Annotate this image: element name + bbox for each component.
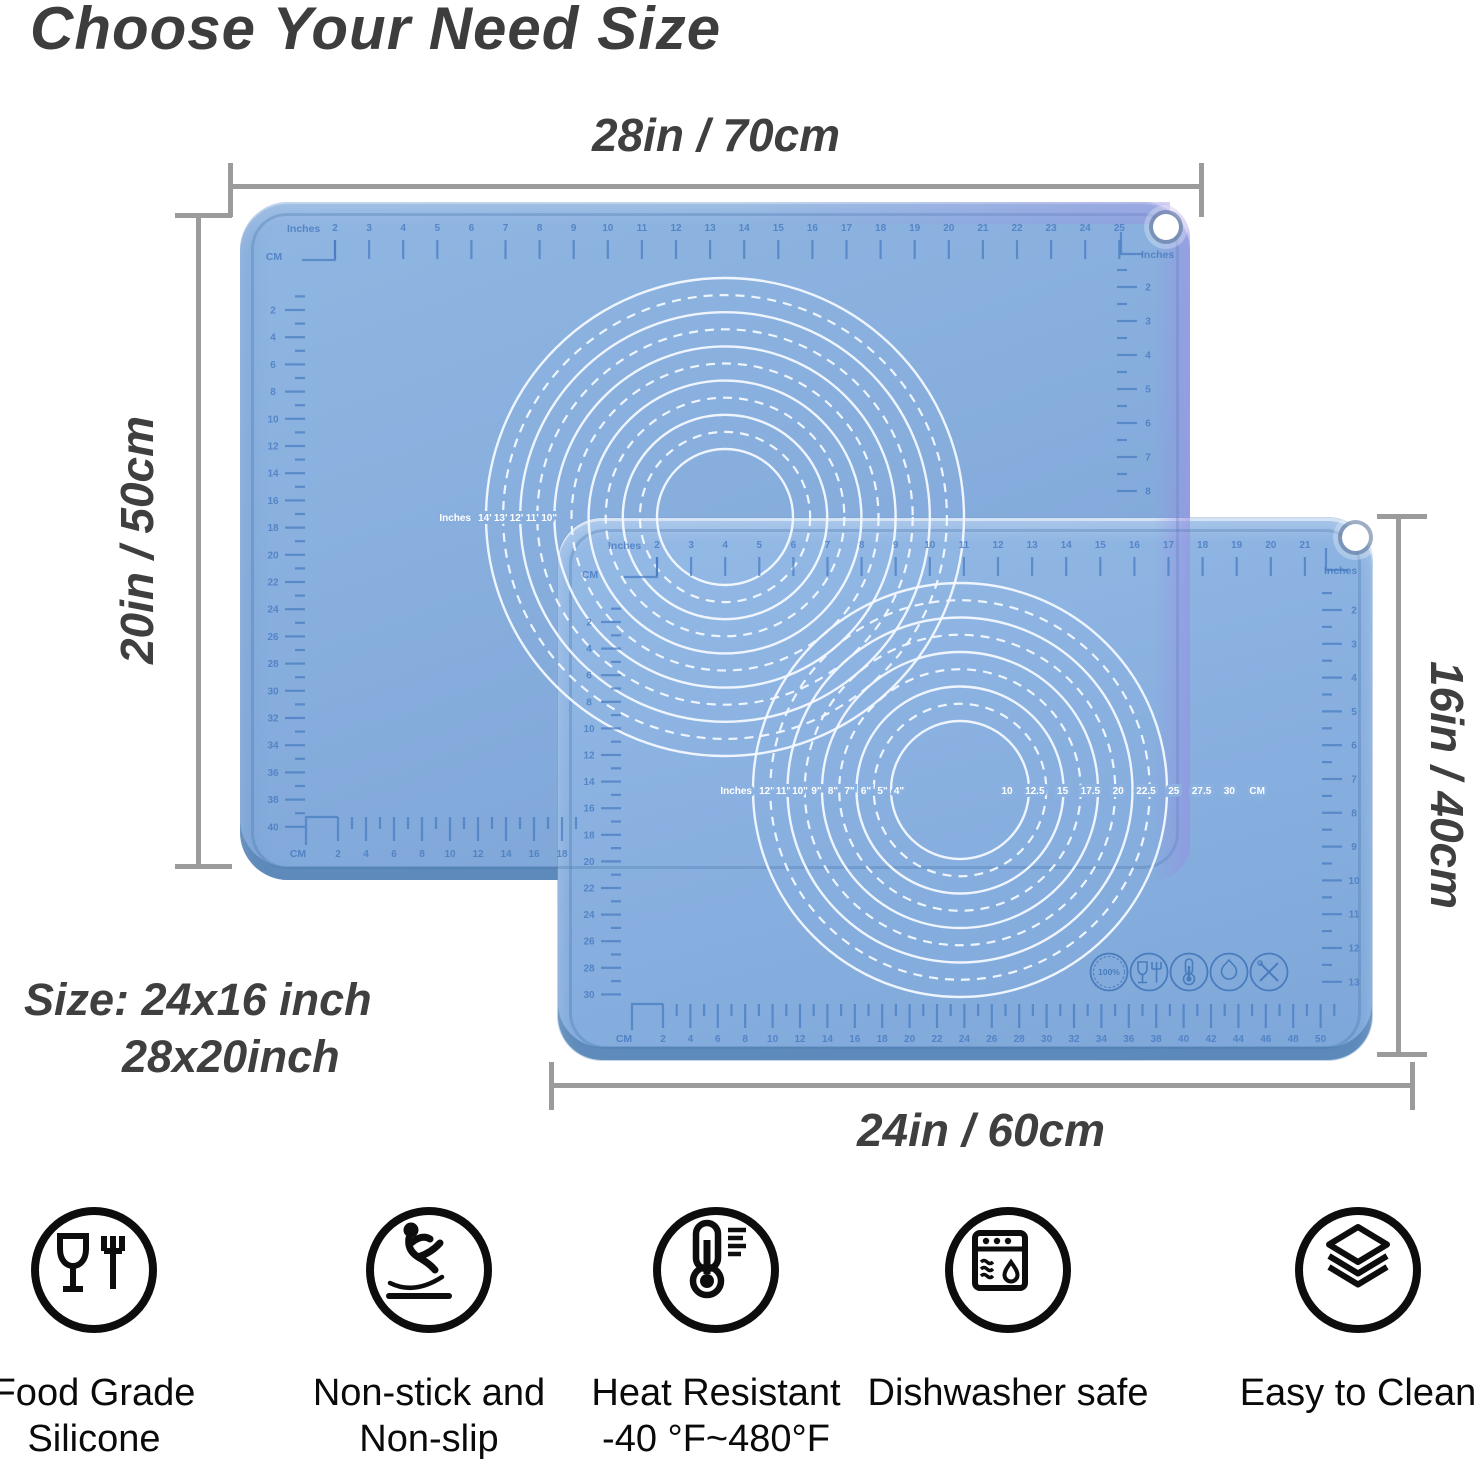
svg-text:2: 2 [654,540,660,551]
svg-text:25: 25 [1114,223,1126,234]
svg-text:10: 10 [767,1034,779,1045]
svg-text:10: 10 [583,724,595,735]
front-mat-hanging-hole [1342,524,1369,551]
svg-text:12: 12 [1348,944,1360,955]
feature-label-line: Easy to Clean [1188,1370,1478,1416]
circle-label: 4" [894,786,905,797]
svg-text:36: 36 [267,768,279,779]
badge-flame-icon [1211,954,1248,991]
dimension-top-tick-left [228,163,233,217]
svg-text:13: 13 [705,223,717,234]
svg-text:3: 3 [366,223,372,234]
svg-text:28: 28 [1014,1034,1026,1045]
circle-label: 22.5 [1136,786,1156,797]
circle-label: 10" [541,513,557,524]
svg-text:CM: CM [616,1033,633,1045]
svg-text:11: 11 [1349,910,1360,921]
svg-text:7: 7 [1145,453,1151,464]
circle-label: Inches [720,786,752,797]
circle-label: 10" [792,786,808,797]
svg-text:20: 20 [904,1034,916,1045]
svg-text:6: 6 [715,1034,721,1045]
dimension-bottom-line [549,1083,1415,1088]
svg-text:18: 18 [267,523,279,534]
svg-text:26: 26 [267,632,279,643]
svg-text:24: 24 [1080,223,1092,234]
svg-text:8: 8 [1351,808,1357,819]
feature-label: Food GradeSilicone [0,1370,264,1463]
svg-text:13: 13 [1348,977,1360,988]
dimension-bottom-label: 24in / 60cm [857,1103,1105,1157]
svg-text:2: 2 [1351,606,1357,617]
svg-text:8: 8 [537,223,543,234]
badge-thermometer-icon [1171,954,1208,991]
svg-text:32: 32 [1068,1034,1080,1045]
svg-text:4: 4 [363,849,369,860]
svg-text:4: 4 [586,644,592,655]
svg-text:16: 16 [528,849,540,860]
svg-text:10: 10 [444,849,456,860]
svg-text:4: 4 [1351,673,1357,684]
easy-clean-icon [1288,1200,1428,1340]
dimension-bottom-tick-right [1410,1062,1415,1110]
svg-text:15: 15 [1095,540,1107,551]
svg-text:10: 10 [602,223,614,234]
circle-label: 15 [1057,786,1069,797]
front-mat-markings: Inches23456789101112131415161718192021CM… [558,518,1372,1060]
svg-text:6: 6 [791,540,797,551]
svg-text:12: 12 [670,223,682,234]
svg-text:4: 4 [400,223,406,234]
svg-text:36: 36 [1123,1034,1135,1045]
svg-text:12: 12 [472,849,484,860]
svg-text:22: 22 [267,578,279,589]
product-size-infographic: Choose Your Need Size 28in / 70cm 20in /… [0,0,1478,1478]
svg-text:CM: CM [266,251,283,263]
svg-text:3: 3 [1351,639,1357,650]
svg-text:Inches: Inches [287,223,320,235]
svg-text:10: 10 [1348,876,1360,887]
svg-text:2: 2 [660,1034,666,1045]
svg-text:5: 5 [435,223,441,234]
svg-text:2: 2 [335,849,341,860]
food-safe-icon [24,1200,164,1340]
svg-text:2: 2 [332,223,338,234]
svg-text:48: 48 [1288,1034,1300,1045]
svg-text:3: 3 [688,540,694,551]
dimension-top-line [230,184,1202,189]
svg-text:42: 42 [1205,1034,1217,1045]
svg-text:11: 11 [959,540,970,551]
circle-label: 10 [1001,786,1013,797]
svg-text:7: 7 [825,540,831,551]
svg-text:6: 6 [270,360,276,371]
circle-label: 12" [510,513,526,524]
svg-text:17: 17 [1163,540,1175,551]
svg-text:6: 6 [1145,419,1151,430]
svg-text:20: 20 [1265,540,1277,551]
svg-text:40: 40 [1178,1034,1190,1045]
svg-text:8: 8 [1145,487,1151,498]
circle-label: 27.5 [1192,786,1212,797]
svg-text:14: 14 [822,1034,834,1045]
svg-text:5: 5 [757,540,763,551]
dough-guide-circles: Inches12"11"10"9"8"7"6"5"4"1012.51517.52… [720,583,1265,997]
svg-text:13: 13 [1027,540,1039,551]
svg-text:34: 34 [1096,1034,1108,1045]
svg-text:4: 4 [722,540,728,551]
circle-label: 20 [1113,786,1125,797]
svg-text:4: 4 [688,1034,694,1045]
svg-text:24: 24 [267,605,279,616]
feature-label: Heat Resistant-40 °F~480°F [546,1370,886,1463]
svg-text:16: 16 [267,496,279,507]
svg-text:38: 38 [1151,1034,1163,1045]
svg-text:Inches: Inches [1141,249,1174,261]
svg-text:2: 2 [1145,283,1151,294]
size-note-line2: 28x20inch [122,1029,372,1086]
svg-text:10: 10 [267,414,279,425]
svg-text:20: 20 [583,857,595,868]
circle-label: 11" [776,786,792,797]
dimension-left-tick-top [175,213,232,218]
svg-text:100%: 100% [1098,967,1120,977]
circle-label: 30 [1224,786,1236,797]
feature-easy-clean: Easy to Clean [1188,1200,1478,1416]
circle-label: 12" [759,786,775,797]
svg-text:2: 2 [586,618,592,629]
svg-text:Inches: Inches [608,540,641,552]
svg-text:6: 6 [469,223,475,234]
svg-text:16: 16 [1129,540,1141,551]
svg-text:21: 21 [1299,540,1311,551]
circle-label: 14" [478,513,494,524]
feature-heat-resistant: Heat Resistant-40 °F~480°F [546,1200,886,1463]
svg-text:16: 16 [849,1034,861,1045]
svg-text:CM: CM [290,848,307,860]
dimension-right-tick-bottom [1377,1052,1427,1057]
svg-text:10: 10 [924,540,936,551]
feature-label-line: Food Grade [0,1370,264,1416]
dimension-left-line [196,215,201,868]
feature-label: Easy to Clean [1188,1370,1478,1416]
svg-text:7: 7 [1351,775,1357,786]
svg-text:8: 8 [859,540,865,551]
svg-text:14: 14 [500,849,512,860]
svg-text:32: 32 [267,714,279,725]
circle-label: 9" [811,786,822,797]
dimension-top-label: 28in / 70cm [592,108,840,162]
svg-text:40: 40 [267,822,279,833]
svg-text:14: 14 [267,469,279,480]
svg-text:14: 14 [583,777,595,788]
svg-text:8: 8 [419,849,425,860]
dishwasher-icon [938,1200,1078,1340]
svg-text:12: 12 [992,540,1004,551]
feature-label-line: Silicone [0,1416,264,1462]
dimension-left-label: 20in / 50cm [110,416,164,664]
svg-text:46: 46 [1260,1034,1272,1045]
svg-text:16: 16 [583,804,595,815]
svg-text:20: 20 [943,223,955,234]
dimension-left-tick-bottom [175,864,232,869]
circle-label: Inches [439,513,471,524]
svg-text:22: 22 [583,884,595,895]
svg-text:38: 38 [267,795,279,806]
svg-text:6: 6 [586,671,592,682]
svg-text:30: 30 [583,990,595,1001]
feature-dishwasher: Dishwasher safe [838,1200,1178,1416]
circle-label: 25 [1168,786,1180,797]
svg-text:5: 5 [1145,385,1151,396]
feature-label-line: -40 °F~480°F [546,1416,886,1462]
svg-text:6: 6 [391,849,397,860]
svg-text:16: 16 [807,223,819,234]
feature-label-line: Heat Resistant [546,1370,886,1416]
svg-text:19: 19 [1231,540,1243,551]
svg-text:22: 22 [1011,223,1023,234]
dimension-right-label: 16in / 40cm [1420,661,1474,909]
circle-label: 7" [844,786,855,797]
circle-label: 8" [828,786,839,797]
dimension-right-line [1396,516,1401,1054]
svg-text:8: 8 [742,1034,748,1045]
svg-text:23: 23 [1046,223,1058,234]
dimension-top-tick-right [1199,163,1204,217]
dimension-bottom-tick-left [549,1062,554,1110]
circle-label: 6" [861,786,872,797]
svg-text:9: 9 [893,540,899,551]
size-note-line1: Size: 24x16 inch [24,972,372,1029]
svg-text:20: 20 [267,550,279,561]
svg-text:8: 8 [270,387,276,398]
circle-label: 5" [877,786,888,797]
svg-text:6: 6 [1351,741,1357,752]
svg-text:3: 3 [1145,317,1151,328]
svg-text:5: 5 [1351,707,1357,718]
circle-label: 13" [494,513,510,524]
svg-text:30: 30 [267,686,279,697]
dimension-right-tick-top [1377,514,1427,519]
svg-text:4: 4 [1145,351,1151,362]
circle-label: CM [1249,786,1265,797]
feature-label-line: Dishwasher safe [838,1370,1178,1416]
svg-text:14: 14 [739,223,751,234]
ruler-marks: Inches23456789101112131415161718192021CM… [582,540,1360,1045]
feature-food-safe: Food GradeSilicone [0,1200,264,1463]
svg-text:50: 50 [1315,1034,1327,1045]
svg-text:30: 30 [1041,1034,1053,1045]
svg-text:18: 18 [875,223,887,234]
svg-text:CM: CM [582,569,599,581]
svg-text:22: 22 [931,1034,943,1045]
feature-label: Dishwasher safe [838,1370,1178,1416]
svg-text:12: 12 [794,1034,806,1045]
svg-text:2: 2 [270,306,276,317]
badge-100-food-grade-icon: 100% [1091,954,1128,991]
page-title: Choose Your Need Size [30,0,721,63]
size-note: Size: 24x16 inch 28x20inch [24,972,372,1085]
certification-badges: 100% [1091,954,1288,991]
svg-text:7: 7 [503,223,509,234]
non-slip-icon [359,1200,499,1340]
svg-text:12: 12 [267,442,279,453]
svg-text:34: 34 [267,741,279,752]
svg-text:4: 4 [270,333,276,344]
svg-text:9: 9 [1351,842,1357,853]
svg-text:21: 21 [977,223,989,234]
svg-text:15: 15 [773,223,785,234]
heat-resistant-icon [646,1200,786,1340]
circle-label: 17.5 [1081,786,1101,797]
svg-text:24: 24 [583,910,595,921]
badge-crossed-utensils-icon [1251,954,1288,991]
svg-text:18: 18 [583,830,595,841]
svg-text:28: 28 [583,963,595,974]
circle-label: 12.5 [1025,786,1045,797]
svg-text:24: 24 [959,1034,971,1045]
svg-text:18: 18 [877,1034,889,1045]
svg-text:28: 28 [267,659,279,670]
big-mat-hanging-hole [1153,214,1179,240]
svg-text:26: 26 [986,1034,998,1045]
svg-text:14: 14 [1061,540,1073,551]
circle-label: 11" [526,513,542,524]
svg-text:8: 8 [586,697,592,708]
svg-text:17: 17 [841,223,853,234]
svg-text:19: 19 [909,223,921,234]
svg-text:18: 18 [1197,540,1209,551]
svg-text:12: 12 [583,751,595,762]
svg-text:44: 44 [1233,1034,1245,1045]
svg-text:26: 26 [583,937,595,948]
front-mat: Inches23456789101112131415161718192021CM… [558,518,1372,1060]
badge-glass-fork-icon [1131,954,1168,991]
svg-text:9: 9 [571,223,577,234]
svg-text:11: 11 [637,223,648,234]
